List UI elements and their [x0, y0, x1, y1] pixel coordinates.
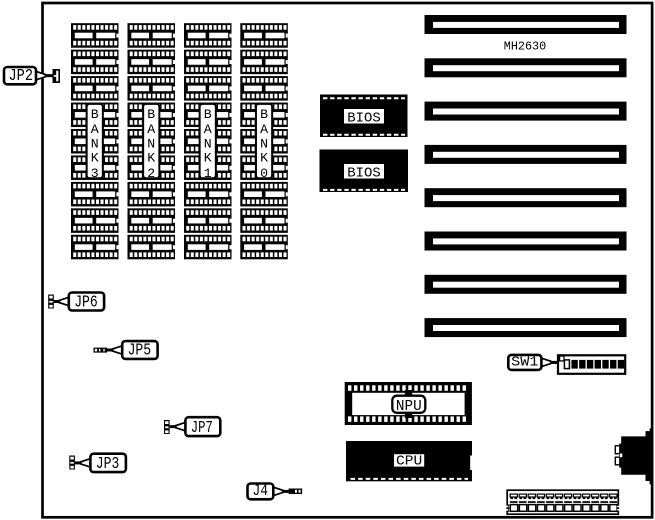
svg-text:MH2630: MH2630: [504, 40, 546, 53]
svg-text:CPU: CPU: [396, 455, 422, 470]
svg-text:B: B: [204, 107, 212, 122]
svg-text:2: 2: [147, 166, 155, 181]
svg-text:K: K: [91, 151, 99, 166]
svg-text:1: 1: [204, 166, 212, 181]
svg-text:A: A: [91, 122, 99, 137]
svg-text:N: N: [204, 136, 212, 151]
svg-text:A: A: [260, 122, 268, 137]
svg-text:J4: J4: [253, 482, 269, 500]
svg-text:0: 0: [260, 166, 268, 181]
svg-text:3: 3: [91, 166, 99, 181]
svg-text:JP5: JP5: [128, 341, 152, 360]
svg-text:SW1: SW1: [511, 355, 538, 371]
svg-text:BIOS: BIOS: [347, 111, 381, 127]
svg-text:K: K: [147, 151, 155, 166]
svg-text:N: N: [260, 136, 268, 151]
svg-text:A: A: [204, 122, 212, 137]
svg-text:NPU: NPU: [396, 398, 422, 415]
svg-text:JP3: JP3: [96, 454, 120, 473]
svg-text:BIOS: BIOS: [347, 166, 381, 182]
svg-text:K: K: [204, 151, 212, 166]
svg-text:JP6: JP6: [74, 292, 98, 311]
svg-text:B: B: [260, 107, 268, 122]
svg-text:B: B: [147, 107, 155, 122]
svg-text:B: B: [91, 107, 99, 122]
svg-text:JP2: JP2: [9, 67, 34, 85]
svg-text:N: N: [91, 136, 99, 151]
svg-text:K: K: [260, 151, 268, 166]
svg-text:JP7: JP7: [191, 418, 213, 437]
svg-text:A: A: [147, 122, 155, 137]
svg-text:N: N: [147, 136, 155, 151]
